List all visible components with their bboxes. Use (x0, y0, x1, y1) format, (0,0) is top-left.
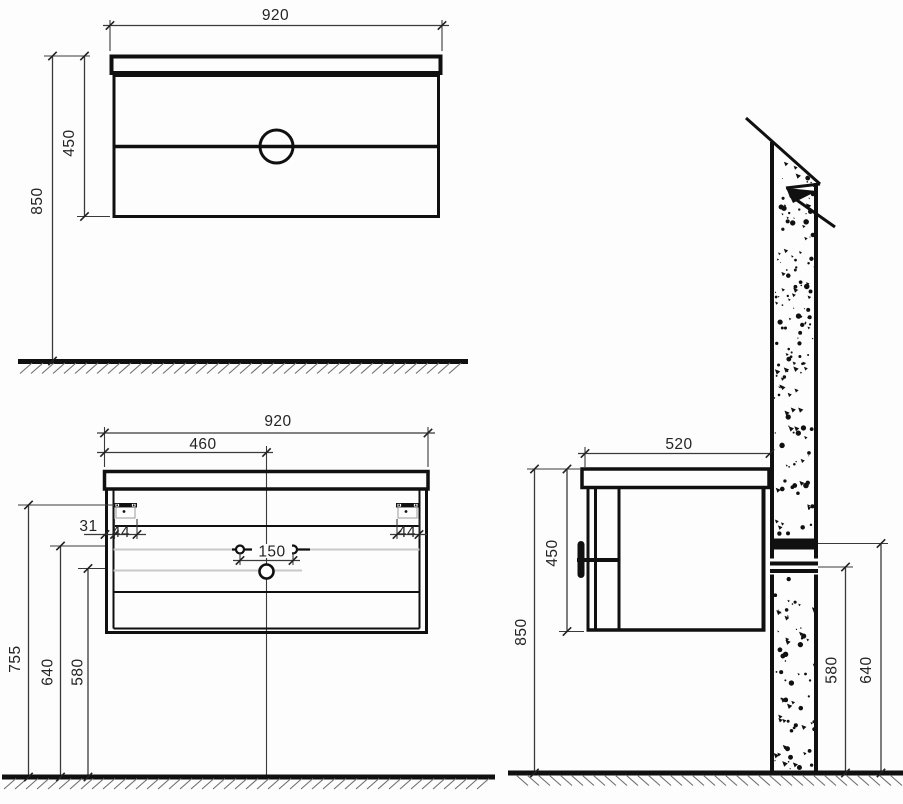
dim-label-depth: 520 (665, 436, 692, 453)
dim-label-cabinet-height: 450 (61, 129, 78, 156)
dim-label-bracket-left: 44 (112, 524, 130, 541)
drawing-canvas: 920 450 850 920 460 (0, 0, 903, 804)
countertop (112, 57, 441, 74)
dim-label-bracket-height: 755 (7, 645, 24, 672)
dim-label-hole-spacing: 150 (258, 544, 285, 561)
front-mounting-view: 920 460 (2, 413, 495, 789)
fixing-hole-left (236, 546, 244, 554)
floor-hatching (4, 779, 489, 790)
technical-drawing-vanity-cabinet: 920 450 850 920 460 (0, 0, 903, 804)
dim-label-rail-height: 640 (858, 656, 875, 683)
dim-label-fixing-height: 640 (40, 658, 57, 685)
front-elevation-view: 920 450 850 (18, 7, 468, 374)
wall-speckle-texture (773, 162, 817, 770)
dim-label-width: 920 (262, 7, 289, 24)
dim-label-lower-fixing-height: 580 (824, 656, 841, 683)
dimension-ticks (24, 21, 885, 781)
drain-hole (260, 565, 274, 579)
mounting-bracket-left (114, 503, 137, 518)
side-section-view: 520 850 450 640 580 (508, 118, 903, 786)
wall-break-symbol (746, 118, 835, 227)
dim-label-width: 920 (264, 413, 291, 430)
knob-handle-profile (578, 541, 585, 578)
countertop-profile (582, 469, 769, 488)
floor-hatching (20, 363, 461, 374)
mounting-bracket-right (396, 503, 419, 518)
floor-hatching (516, 775, 902, 786)
dim-label-bracket-right: 44 (398, 524, 416, 541)
dim-label-cabinet-height: 450 (544, 539, 561, 566)
dim-label-bracket-inset: 31 (79, 518, 97, 535)
dim-label-top-height: 850 (29, 187, 46, 214)
wall-fixing-rail (770, 539, 818, 575)
dim-label-top-height: 850 (513, 618, 530, 645)
dim-label-drain-height: 580 (70, 658, 87, 685)
dim-label-center-offset: 460 (189, 436, 216, 453)
